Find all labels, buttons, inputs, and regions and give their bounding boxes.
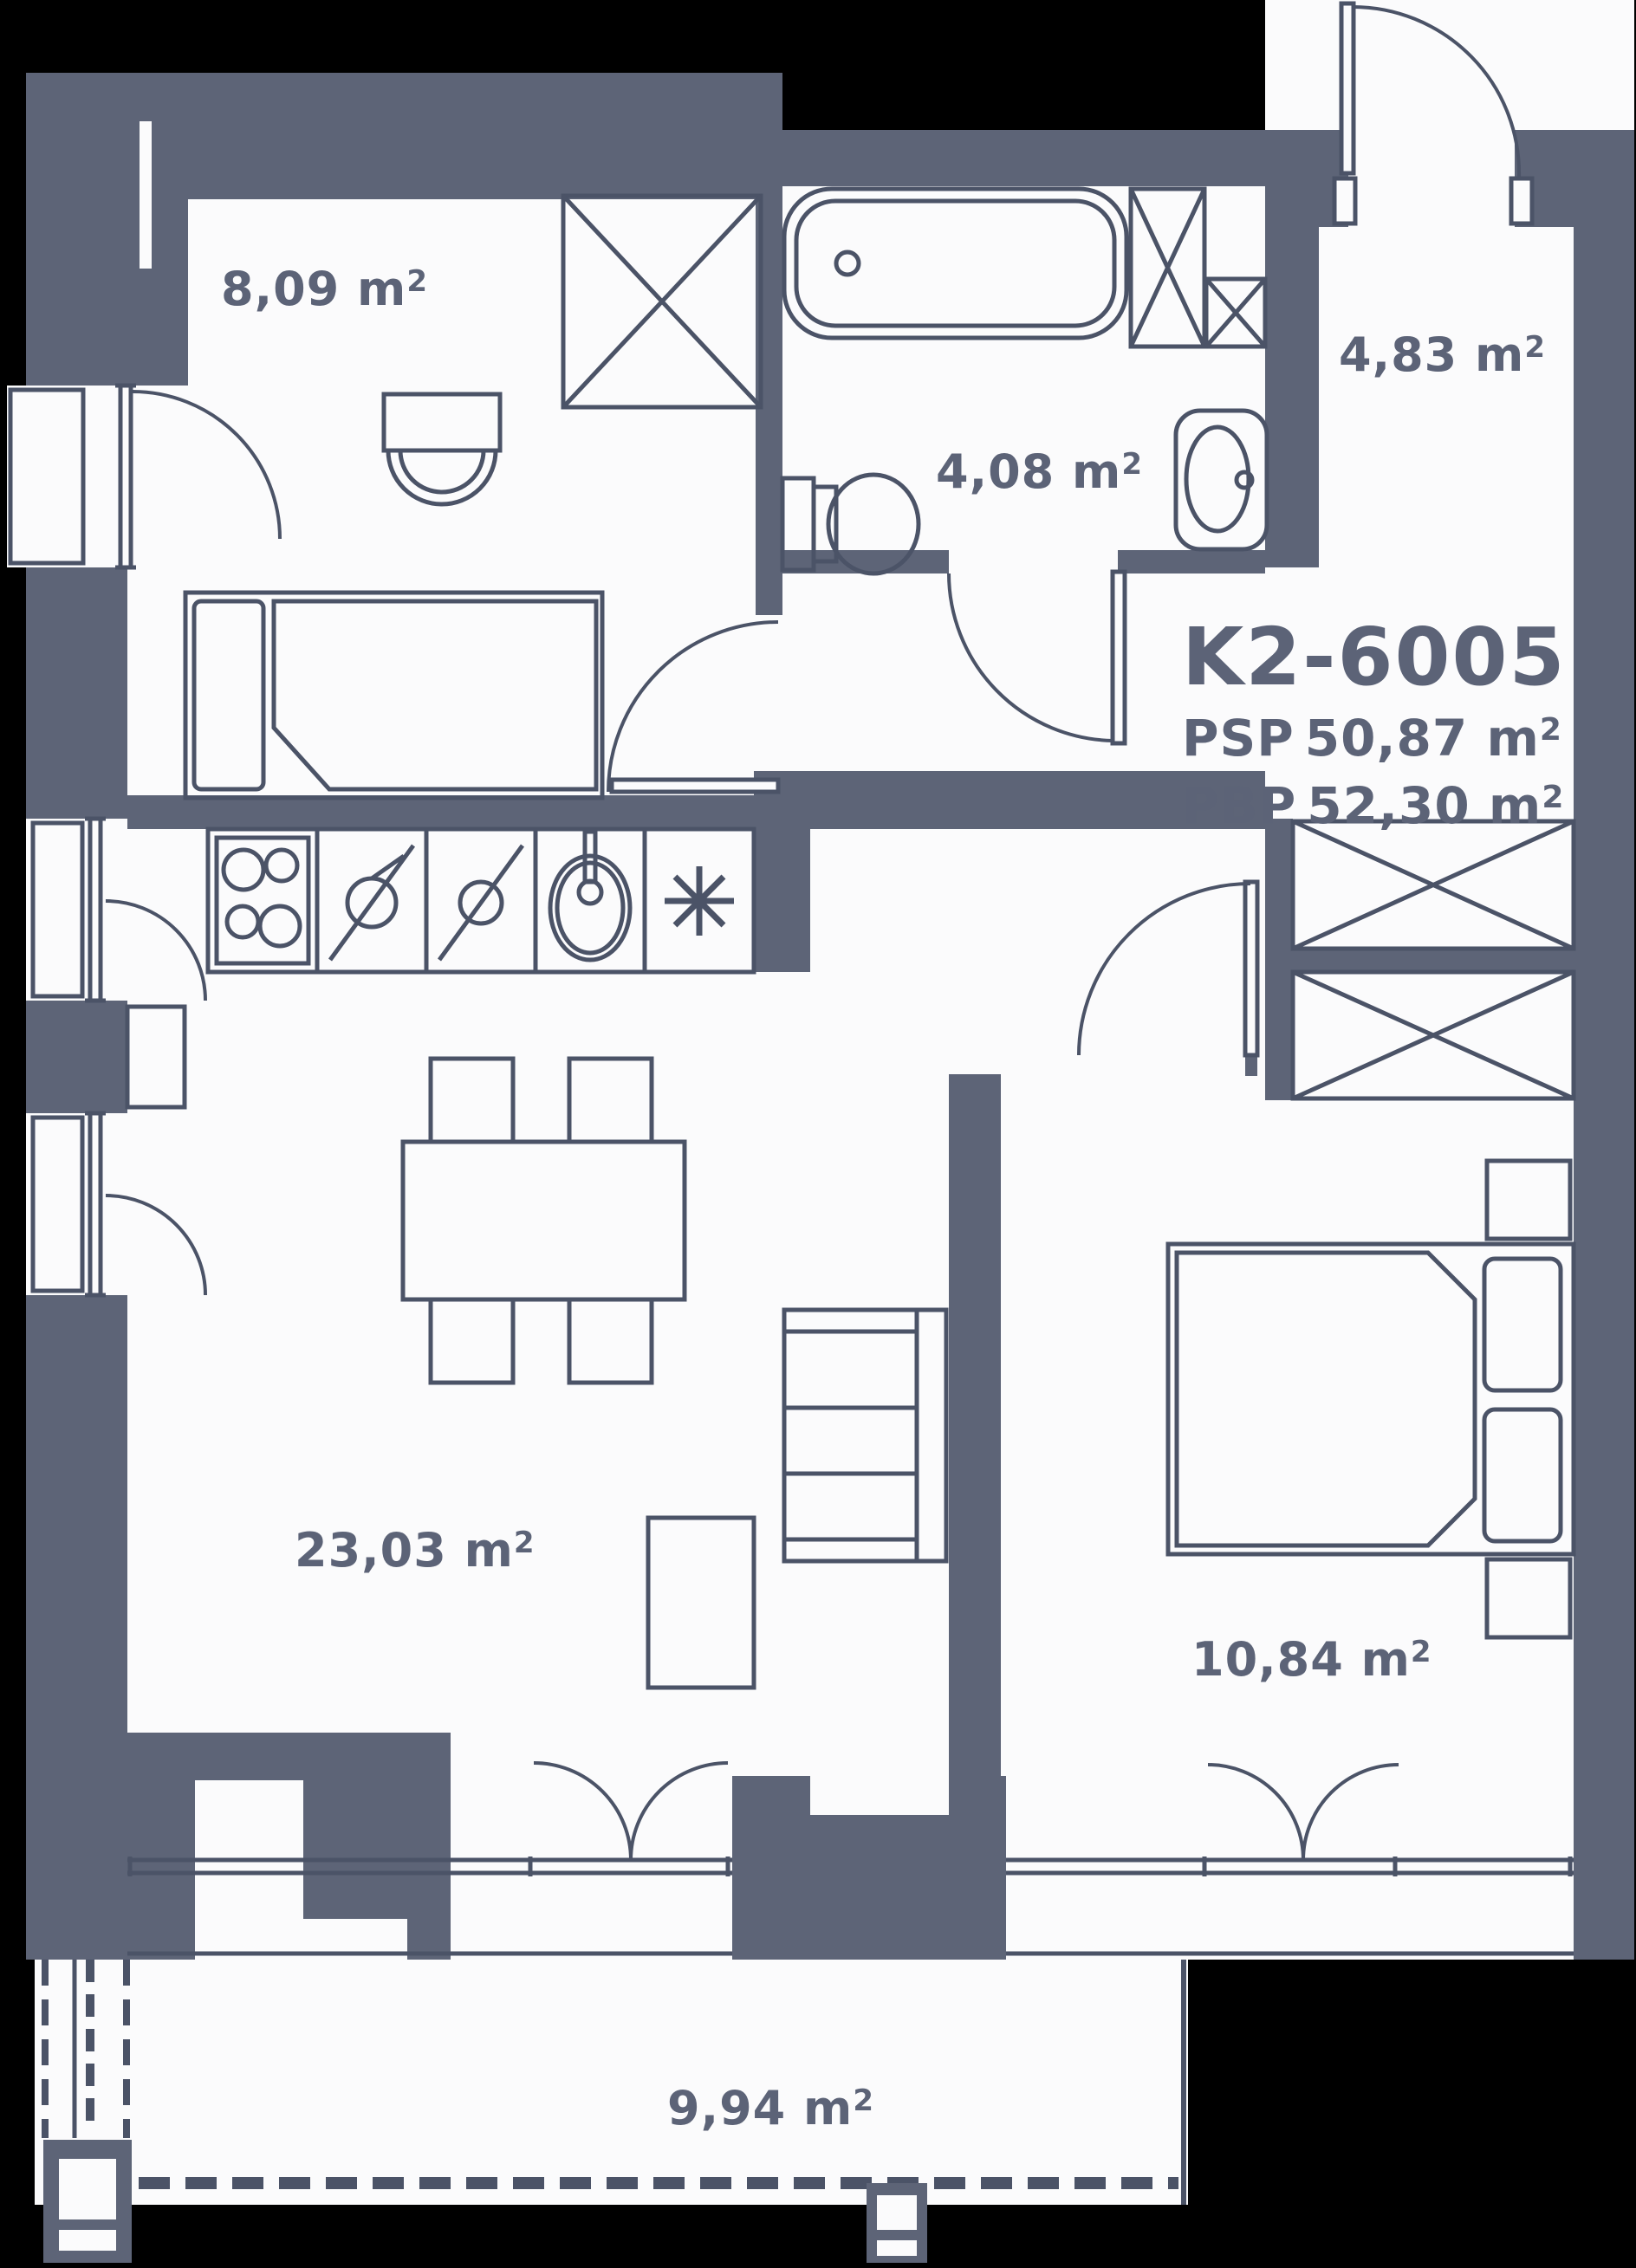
wall-kitchen-band [127,795,782,829]
wall-corner-top-left [26,73,188,386]
room-label-balcony: 9,94 m2 [667,2081,874,2135]
wall-slit-vent [140,121,152,269]
room-label-bedroom: 10,84 m2 [1191,1632,1432,1687]
wall-living-bedroom [949,1074,1001,1815]
fridge-asterisk-icon [665,866,734,936]
wall-wardrobe-shelf [1265,949,1574,972]
wall-right-exterior [1574,227,1634,1960]
wall-bath-entry [1265,186,1319,567]
wall-left-a [26,567,127,819]
wall-top-bathroom [782,130,1265,186]
wall-kitchen-stub [754,771,810,972]
table-icon-dining [403,1142,685,1299]
balcony-post-left [43,2140,132,2263]
psp-area-label: PSP50,87 m2 [1182,709,1562,768]
floorplan-canvas: K2-6005 PSP50,87 m2 PBP52,30 m2 8,09 m2 … [0,0,1636,2268]
balcony-post-center [867,2183,927,2263]
wall-bath-bottom-right [1118,550,1265,573]
unit-id-label: K2-6005 [1182,611,1567,703]
wall-facade-pier-tab-right [979,1776,1006,1815]
wall-facade-pier-tab-left [732,1776,810,1815]
radiator [127,1007,185,1107]
room-label-entry-hall: 4,83 m2 [1339,327,1546,382]
bedroom-door-hinge-stub [1245,1055,1257,1076]
pbp-area-label: PBP52,30 m2 [1182,776,1564,835]
wall-left-pier [26,1001,127,1113]
room-label-bathroom: 4,08 m2 [936,444,1143,499]
closet-notch-a [195,1780,303,1919]
room-label-small-bedroom: 8,09 m2 [221,262,428,316]
wall-facade-pier [732,1815,1006,1960]
floorplan-svg: K2-6005 PSP50,87 m2 PBP52,30 m2 8,09 m2 … [0,0,1636,2268]
window-opening-small-bedroom [7,386,127,567]
room-label-living-kitchen: 23,03 m2 [295,1523,536,1578]
wall-left-b [26,1295,127,1733]
balcony-floor [35,1960,1188,2205]
